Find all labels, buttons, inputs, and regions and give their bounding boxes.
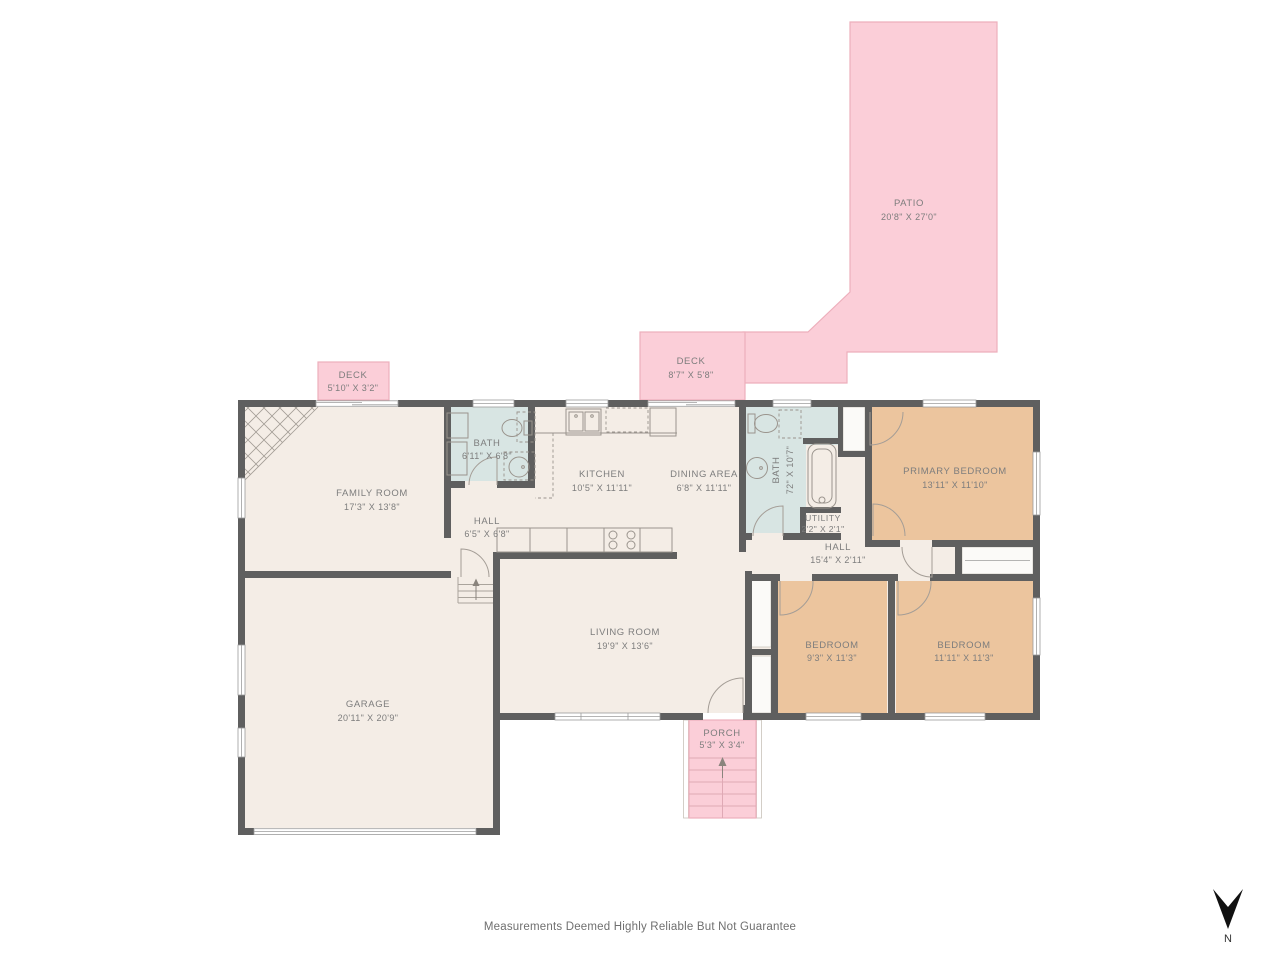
bath-primary-dims: 72" X 10'7" [785, 446, 795, 495]
patio-area [743, 22, 997, 383]
living-room-dims: 19'9" X 13'6" [597, 641, 653, 651]
window [806, 713, 861, 720]
utility-dims: 2'2" X 2'1" [802, 524, 845, 534]
deck-left-label: DECK [339, 370, 368, 381]
kitchen-dims: 10'5" X 11'11" [572, 483, 632, 493]
family-room-dims: 17'3" X 13'8" [344, 502, 400, 512]
window [1033, 598, 1040, 655]
patio-dims: 20'8" X 27'0" [881, 212, 937, 222]
bedroom-left-label: BEDROOM [805, 640, 858, 651]
bath-primary-label: BATH [771, 456, 782, 483]
deck-right-label: DECK [677, 356, 706, 367]
footer-disclaimer: Measurements Deemed Highly Reliable But … [484, 921, 796, 933]
window [923, 400, 976, 407]
hall-front-dims: 6'5" X 6'8" [464, 529, 509, 539]
sliding-door [316, 401, 398, 407]
primary-bedroom-label: PRIMARY BEDROOM [903, 466, 1007, 477]
family-room-label: FAMILY ROOM [336, 488, 408, 499]
window [238, 728, 245, 757]
kitchen-label: KITCHEN [579, 469, 625, 480]
window [473, 400, 514, 407]
porch-dims: 5'3" X 3'4" [699, 740, 744, 750]
bath-main-label: BATH [473, 438, 500, 449]
north-arrow-icon: N [1213, 889, 1243, 945]
porch-label: PORCH [703, 728, 740, 739]
deck-left-dims: 5'10" X 3'2" [328, 383, 379, 393]
hall-front-label: HALL [474, 516, 500, 527]
window [566, 400, 608, 407]
window [238, 478, 245, 518]
window [238, 645, 245, 695]
deck-right-dims: 8'7" X 5'8" [668, 370, 713, 380]
utility-label: UTILITY [805, 513, 841, 523]
primary-bedroom-dims: 13'11" X 11'10" [922, 480, 988, 490]
dining-area-label: DINING AREA [670, 469, 738, 480]
bedroom-left-dims: 9'3" X 11'3" [807, 653, 857, 663]
north-label: N [1224, 933, 1232, 945]
bedroom-right-label: BEDROOM [937, 640, 990, 651]
floorplan-canvas: PATIO 20'8" X 27'0" DECK 8'7" X 5'8" DEC… [0, 0, 1280, 960]
garage-door [254, 829, 476, 835]
window [1033, 452, 1040, 515]
sliding-door [648, 401, 735, 407]
garage-label: GARAGE [346, 699, 390, 710]
dining-area-dims: 6'8" X 11'11" [677, 483, 732, 493]
window [773, 400, 811, 407]
window [555, 713, 660, 720]
window [925, 713, 985, 720]
floorplan-page: PATIO 20'8" X 27'0" DECK 8'7" X 5'8" DEC… [0, 0, 1280, 960]
bedroom-right-dims: 11'11" X 11'3" [934, 653, 993, 663]
hall-bedrooms-dims: 15'4" X 2'11" [810, 555, 865, 565]
living-room-label: LIVING ROOM [590, 627, 660, 638]
primary-closet [843, 407, 865, 451]
garage-dims: 20'11" X 20'9" [338, 713, 399, 723]
bath-main-dims: 6'11" X 6'8" [462, 451, 512, 461]
hall-bedrooms-label: HALL [825, 542, 851, 553]
patio-label: PATIO [894, 198, 924, 209]
deck-left-area [318, 362, 389, 400]
